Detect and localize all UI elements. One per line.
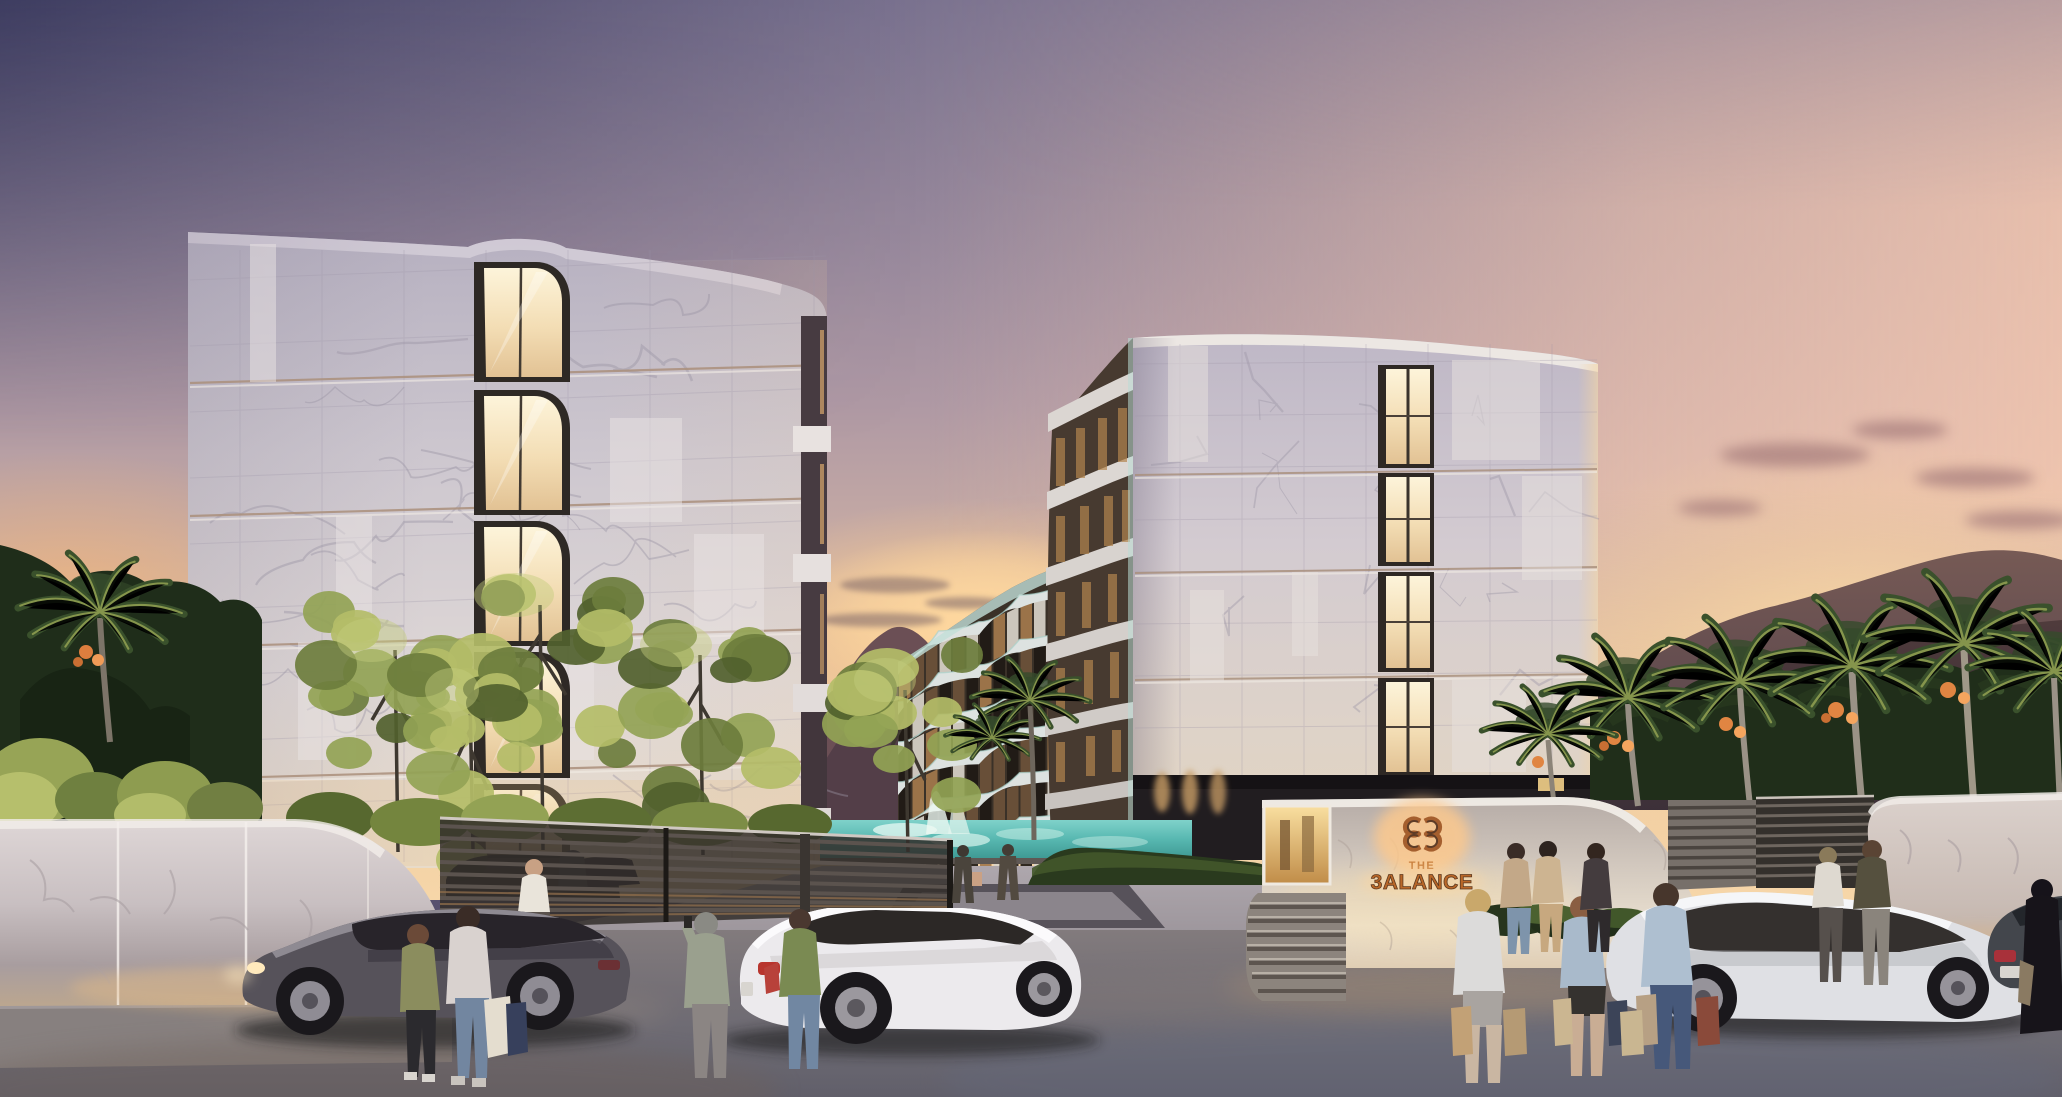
svg-text:3ALANCE: 3ALANCE	[1371, 871, 1474, 894]
